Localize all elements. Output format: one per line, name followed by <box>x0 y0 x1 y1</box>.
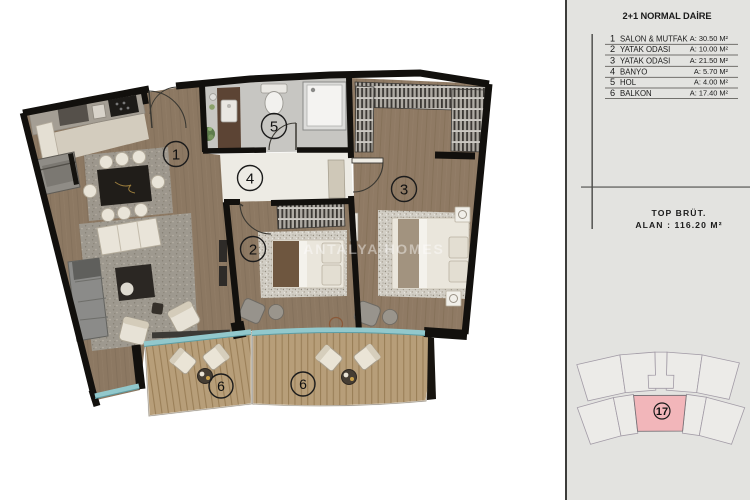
svg-text:5: 5 <box>270 118 278 135</box>
svg-text:ALAN : 116.20 M²: ALAN : 116.20 M² <box>635 220 722 230</box>
svg-text:2: 2 <box>249 241 257 258</box>
svg-text:6: 6 <box>217 378 225 394</box>
svg-text:YATAK ODASI: YATAK ODASI <box>620 57 670 66</box>
svg-text:3: 3 <box>400 181 408 198</box>
svg-text:1: 1 <box>172 146 180 163</box>
svg-text:A: 30.50 M²: A: 30.50 M² <box>690 34 729 43</box>
svg-text:A: 5.70 M²: A: 5.70 M² <box>694 67 729 76</box>
svg-text:A: 21.50 M²: A: 21.50 M² <box>690 56 729 65</box>
svg-text:A: 10.00 M²: A: 10.00 M² <box>690 45 729 54</box>
svg-text:2+1 NORMAL DAİRE: 2+1 NORMAL DAİRE <box>623 11 712 21</box>
svg-text:YATAK ODASI: YATAK ODASI <box>620 45 670 54</box>
svg-text:BALKON: BALKON <box>620 89 652 98</box>
svg-text:BANYO: BANYO <box>620 68 647 77</box>
svg-text:A: 17.40 M²: A: 17.40 M² <box>690 88 729 97</box>
svg-text:3: 3 <box>610 56 615 66</box>
svg-text:ANTALYA HOMES: ANTALYA HOMES <box>303 241 444 257</box>
svg-text:2: 2 <box>610 44 615 54</box>
svg-text:6: 6 <box>610 88 615 98</box>
svg-text:6: 6 <box>299 376 307 392</box>
svg-text:A: 4.00 M²: A: 4.00 M² <box>694 78 729 87</box>
svg-text:17: 17 <box>656 406 668 418</box>
svg-text:4: 4 <box>610 67 615 77</box>
svg-text:HOL: HOL <box>620 78 637 87</box>
svg-text:1: 1 <box>610 34 615 44</box>
svg-text:TOP BRÜT.: TOP BRÜT. <box>652 208 707 218</box>
svg-text:5: 5 <box>610 77 615 87</box>
svg-text:4: 4 <box>246 170 254 187</box>
svg-text:SALON & MUTFAK: SALON & MUTFAK <box>620 35 688 44</box>
